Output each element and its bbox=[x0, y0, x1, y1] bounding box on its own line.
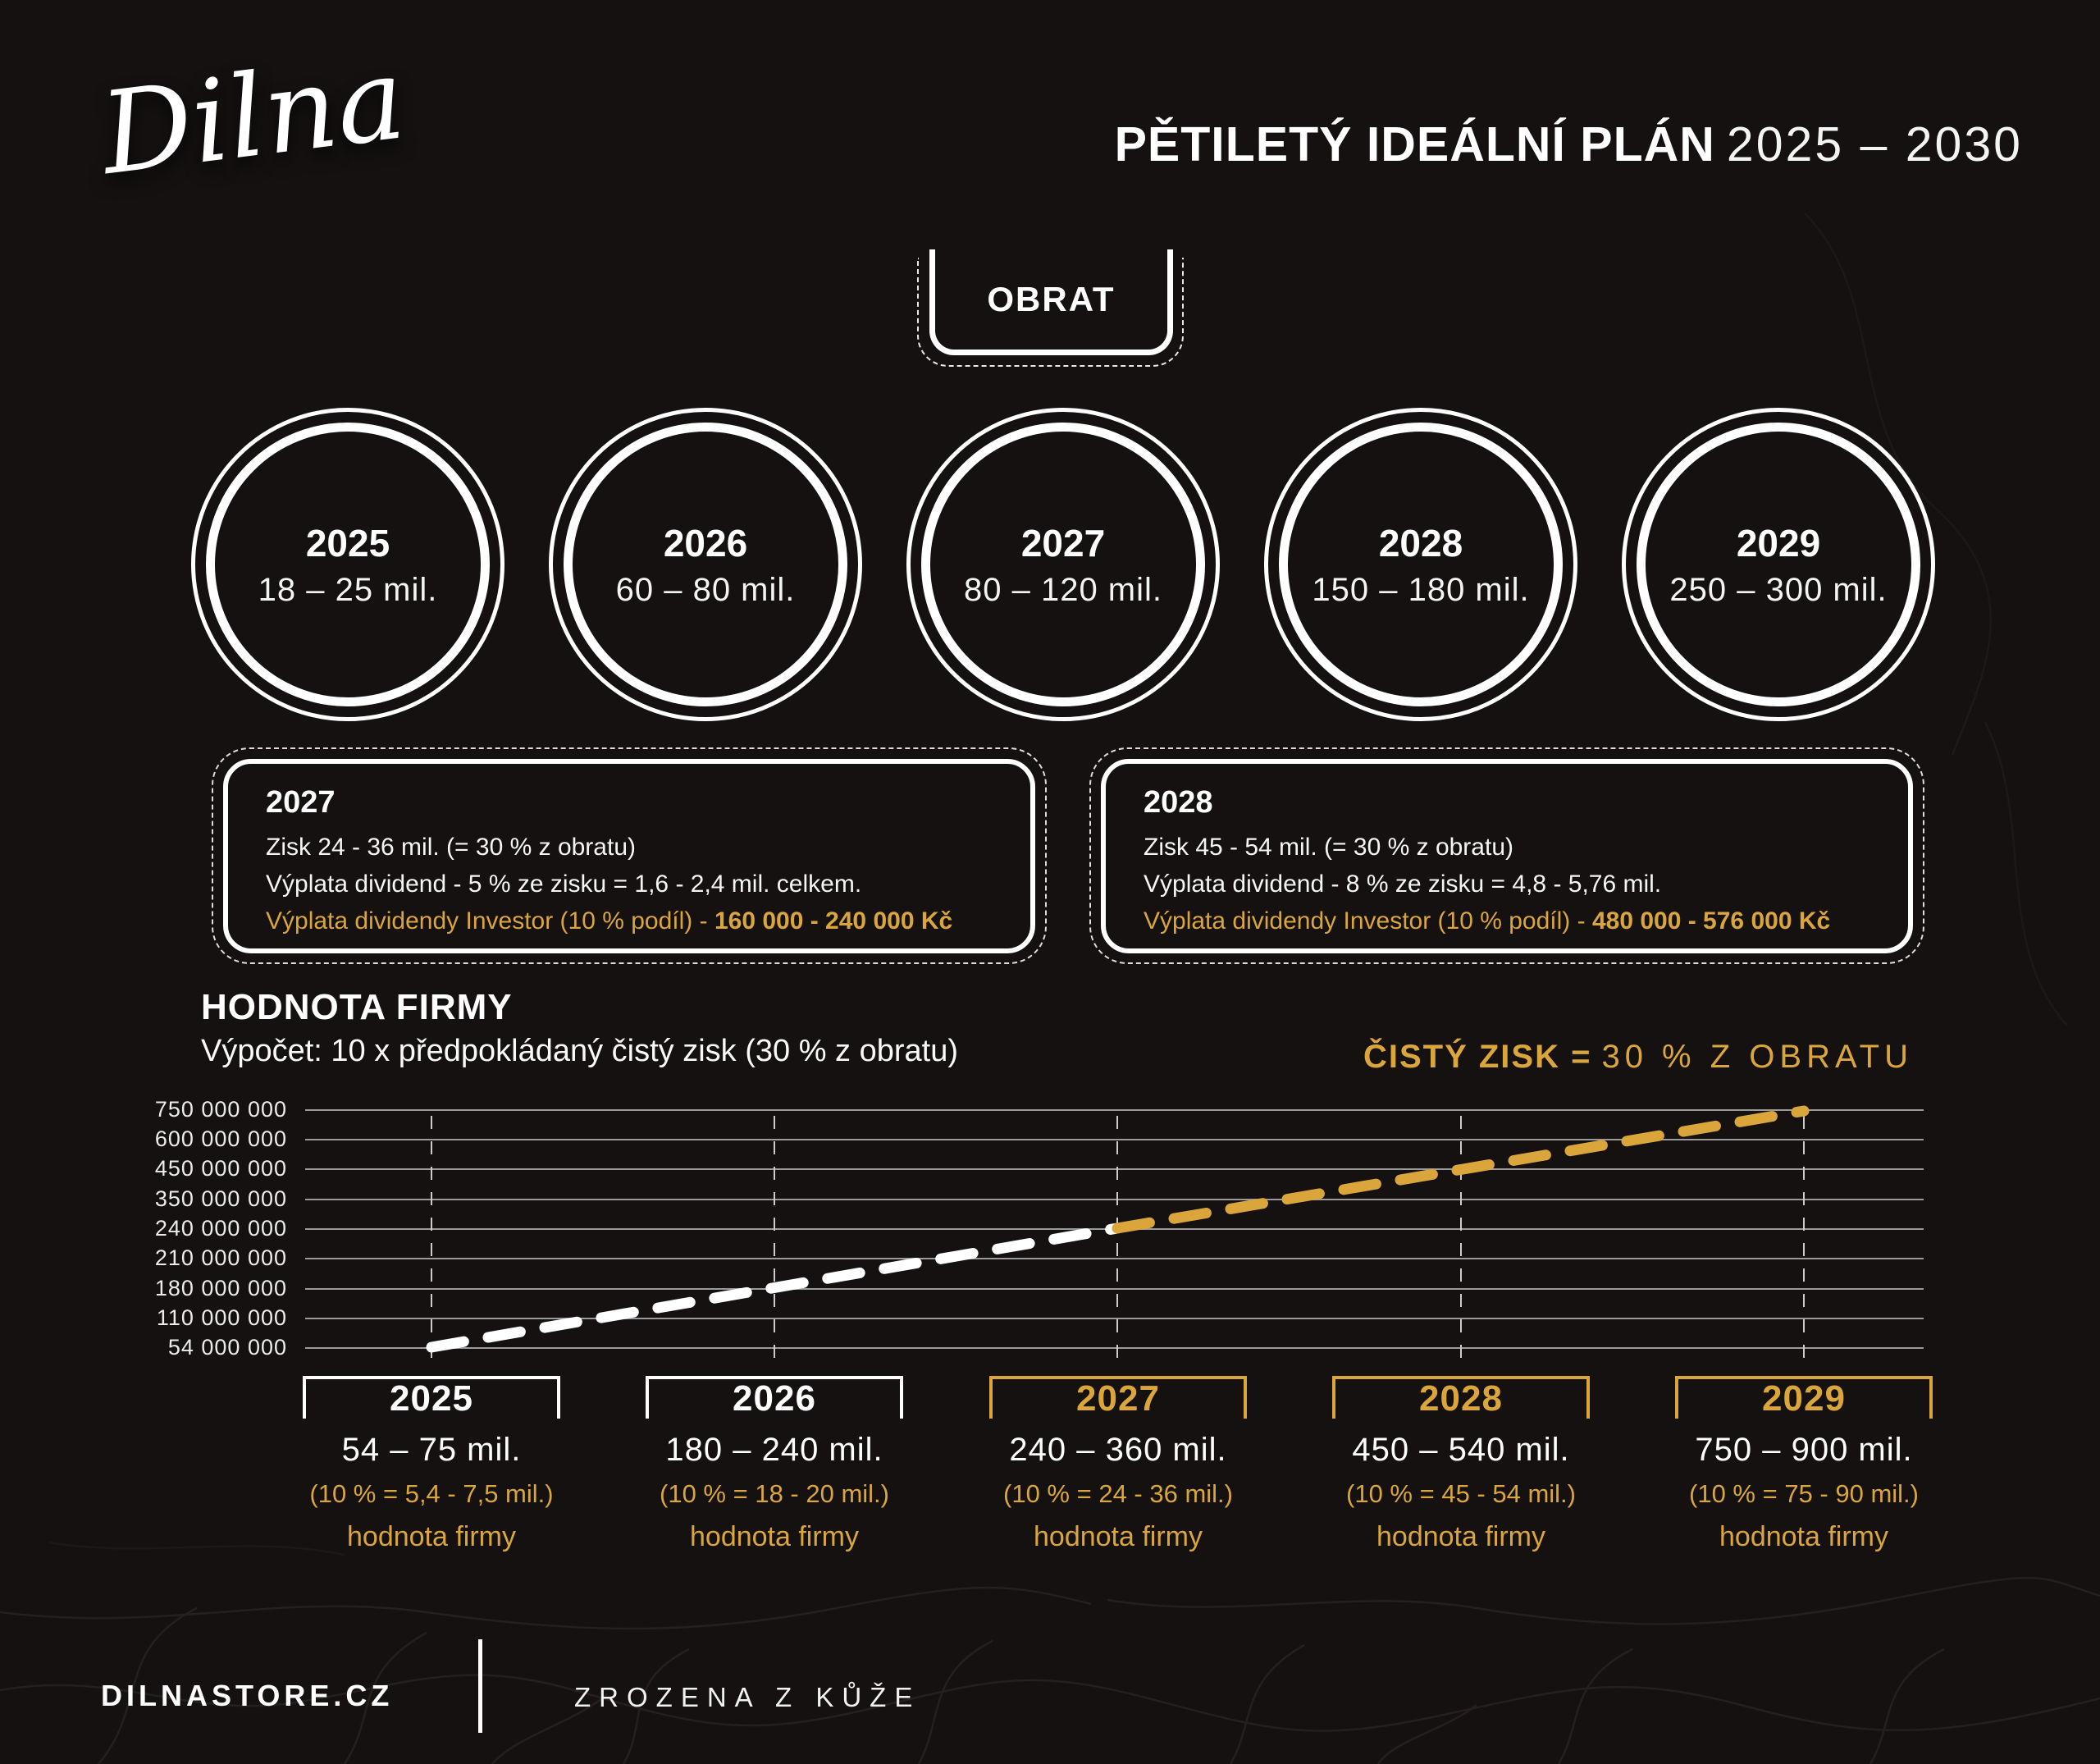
footer-divider bbox=[478, 1639, 482, 1733]
y-tick-label: 210 000 000 bbox=[90, 1245, 287, 1271]
circle-range: 150 – 180 mil. bbox=[1312, 572, 1529, 609]
x-share: (10 % = 18 - 20 mil.) bbox=[646, 1479, 903, 1509]
turnover-circle-2026: 2026 60 – 80 mil. bbox=[549, 408, 862, 721]
turnover-circle-2028: 2028 150 – 180 mil. bbox=[1264, 408, 1577, 721]
x-range: 54 – 75 mil. bbox=[303, 1432, 560, 1469]
year-bracket: 2025 bbox=[303, 1376, 560, 1419]
year-bracket: 2028 bbox=[1332, 1376, 1590, 1419]
circle-range: 250 – 300 mil. bbox=[1669, 572, 1887, 609]
page-title: PĚTILETÝ IDEÁLNÍ PLÁN2025 – 2030 bbox=[1115, 117, 2023, 172]
x-year: 2025 bbox=[390, 1378, 473, 1419]
x-label-2029: 2029 750 – 900 mil. (10 % = 75 - 90 mil.… bbox=[1675, 1376, 1933, 1553]
x-label-2028: 2028 450 – 540 mil. (10 % = 45 - 54 mil.… bbox=[1332, 1376, 1590, 1553]
circle-year: 2027 bbox=[1021, 521, 1105, 565]
turnover-circle-inner: 2029 250 – 300 mil. bbox=[1637, 423, 1920, 706]
x-label-2027: 2027 240 – 360 mil. (10 % = 24 - 36 mil.… bbox=[989, 1376, 1247, 1553]
x-caption: hodnota firmy bbox=[1332, 1521, 1590, 1553]
profit-box-2027: 2027 Zisk 24 - 36 mil. (= 30 % z obratu)… bbox=[223, 759, 1035, 953]
obrat-badge: OBRAT bbox=[929, 249, 1173, 355]
circle-range: 18 – 25 mil. bbox=[258, 572, 438, 609]
investor-line: Výplata dividendy Investor (10 % podíl) … bbox=[266, 903, 1006, 939]
dividend-line: Výplata dividend - 8 % ze zisku = 4,8 - … bbox=[1144, 866, 1883, 903]
turnover-circle-inner: 2026 60 – 80 mil. bbox=[564, 423, 847, 706]
year-bracket: 2027 bbox=[989, 1376, 1247, 1419]
profit-box-2028: 2028 Zisk 45 - 54 mil. (= 30 % z obratu)… bbox=[1101, 759, 1913, 953]
y-tick-label: 350 000 000 bbox=[90, 1186, 287, 1212]
x-year: 2029 bbox=[1762, 1378, 1846, 1419]
x-share: (10 % = 24 - 36 mil.) bbox=[989, 1479, 1247, 1509]
turnover-circle-inner: 2028 150 – 180 mil. bbox=[1279, 423, 1563, 706]
page-title-years: 2025 – 2030 bbox=[1727, 117, 2023, 171]
circle-year: 2026 bbox=[664, 521, 747, 565]
turnover-circle-2029: 2029 250 – 300 mil. bbox=[1622, 408, 1935, 721]
x-caption: hodnota firmy bbox=[646, 1521, 903, 1553]
x-share: (10 % = 45 - 54 mil.) bbox=[1332, 1479, 1590, 1509]
x-caption: hodnota firmy bbox=[1675, 1521, 1933, 1553]
investor-line: Výplata dividendy Investor (10 % podíl) … bbox=[1144, 903, 1883, 939]
x-range: 180 – 240 mil. bbox=[646, 1432, 903, 1469]
x-caption: hodnota firmy bbox=[989, 1521, 1247, 1553]
circle-year: 2025 bbox=[306, 521, 390, 565]
obrat-label: OBRAT bbox=[987, 280, 1115, 319]
net-profit-note-regular: 30 % Z OBRATU bbox=[1601, 1039, 1913, 1075]
x-year: 2028 bbox=[1419, 1378, 1503, 1419]
x-label-2025: 2025 54 – 75 mil. (10 % = 5,4 - 7,5 mil.… bbox=[303, 1376, 560, 1553]
investor-line-text: Výplata dividendy Investor (10 % podíl) … bbox=[266, 907, 714, 935]
x-caption: hodnota firmy bbox=[303, 1521, 560, 1553]
turnover-circle-inner: 2027 80 – 120 mil. bbox=[921, 423, 1205, 706]
value-section-heading: HODNOTA FIRMY bbox=[201, 987, 513, 1028]
investor-amount: 480 000 - 576 000 Kč bbox=[1592, 907, 1830, 935]
year-bracket: 2026 bbox=[646, 1376, 903, 1419]
y-tick-label: 240 000 000 bbox=[90, 1216, 287, 1241]
x-range: 450 – 540 mil. bbox=[1332, 1432, 1590, 1469]
trend-segment-white bbox=[431, 1228, 1117, 1347]
year-bracket: 2029 bbox=[1675, 1376, 1933, 1419]
circle-year: 2028 bbox=[1379, 521, 1463, 565]
turnover-circle-inner: 2025 18 – 25 mil. bbox=[206, 423, 490, 706]
y-tick-label: 600 000 000 bbox=[90, 1126, 287, 1152]
profit-line: Zisk 24 - 36 mil. (= 30 % z obratu) bbox=[266, 829, 1006, 866]
profit-box-year: 2027 bbox=[266, 785, 1006, 820]
y-tick-label: 54 000 000 bbox=[90, 1335, 287, 1360]
investor-amount: 160 000 - 240 000 Kč bbox=[714, 907, 952, 935]
y-tick-label: 450 000 000 bbox=[90, 1156, 287, 1181]
footer-slogan: ZROZENA Z KŮŽE bbox=[574, 1682, 920, 1713]
investor-line-text: Výplata dividendy Investor (10 % podíl) … bbox=[1144, 907, 1592, 935]
value-trend-line bbox=[305, 1109, 1924, 1347]
x-range: 750 – 900 mil. bbox=[1675, 1432, 1933, 1469]
x-label-2026: 2026 180 – 240 mil. (10 % = 18 - 20 mil.… bbox=[646, 1376, 903, 1553]
gridline: 54 000 000 bbox=[305, 1347, 1924, 1349]
x-year: 2026 bbox=[733, 1378, 816, 1419]
page-title-main: PĚTILETÝ IDEÁLNÍ PLÁN bbox=[1115, 117, 1715, 171]
circle-year: 2029 bbox=[1737, 521, 1820, 565]
circle-range: 80 – 120 mil. bbox=[964, 572, 1162, 609]
y-tick-label: 110 000 000 bbox=[90, 1305, 287, 1331]
value-section-subtitle: Výpočet: 10 x předpokládaný čistý zisk (… bbox=[201, 1034, 958, 1069]
profit-box-year: 2028 bbox=[1144, 785, 1883, 820]
y-tick-label: 750 000 000 bbox=[90, 1097, 287, 1122]
dilna-logo: Dilna bbox=[94, 27, 457, 240]
x-share: (10 % = 5,4 - 7,5 mil.) bbox=[303, 1479, 560, 1509]
circle-range: 60 – 80 mil. bbox=[616, 572, 796, 609]
net-profit-note-bold: ČISTÝ ZISK = bbox=[1363, 1039, 1592, 1075]
turnover-circle-2027: 2027 80 – 120 mil. bbox=[906, 408, 1220, 721]
company-value-chart: 750 000 000 600 000 000 450 000 000 350 … bbox=[305, 1109, 1924, 1347]
infographic-page: Dilna PĚTILETÝ IDEÁLNÍ PLÁN2025 – 2030 O… bbox=[0, 0, 2100, 1764]
turnover-circle-2025: 2025 18 – 25 mil. bbox=[191, 408, 504, 721]
footer-site: DILNASTORE.CZ bbox=[101, 1679, 393, 1713]
net-profit-note: ČISTÝ ZISK =30 % Z OBRATU bbox=[1363, 1039, 1913, 1076]
x-range: 240 – 360 mil. bbox=[989, 1432, 1247, 1469]
dividend-line: Výplata dividend - 5 % ze zisku = 1,6 - … bbox=[266, 866, 1006, 903]
profit-line: Zisk 45 - 54 mil. (= 30 % z obratu) bbox=[1144, 829, 1883, 866]
x-year: 2027 bbox=[1076, 1378, 1160, 1419]
trend-segment-gold bbox=[1117, 1111, 1804, 1228]
y-tick-label: 180 000 000 bbox=[90, 1276, 287, 1301]
x-share: (10 % = 75 - 90 mil.) bbox=[1675, 1479, 1933, 1509]
